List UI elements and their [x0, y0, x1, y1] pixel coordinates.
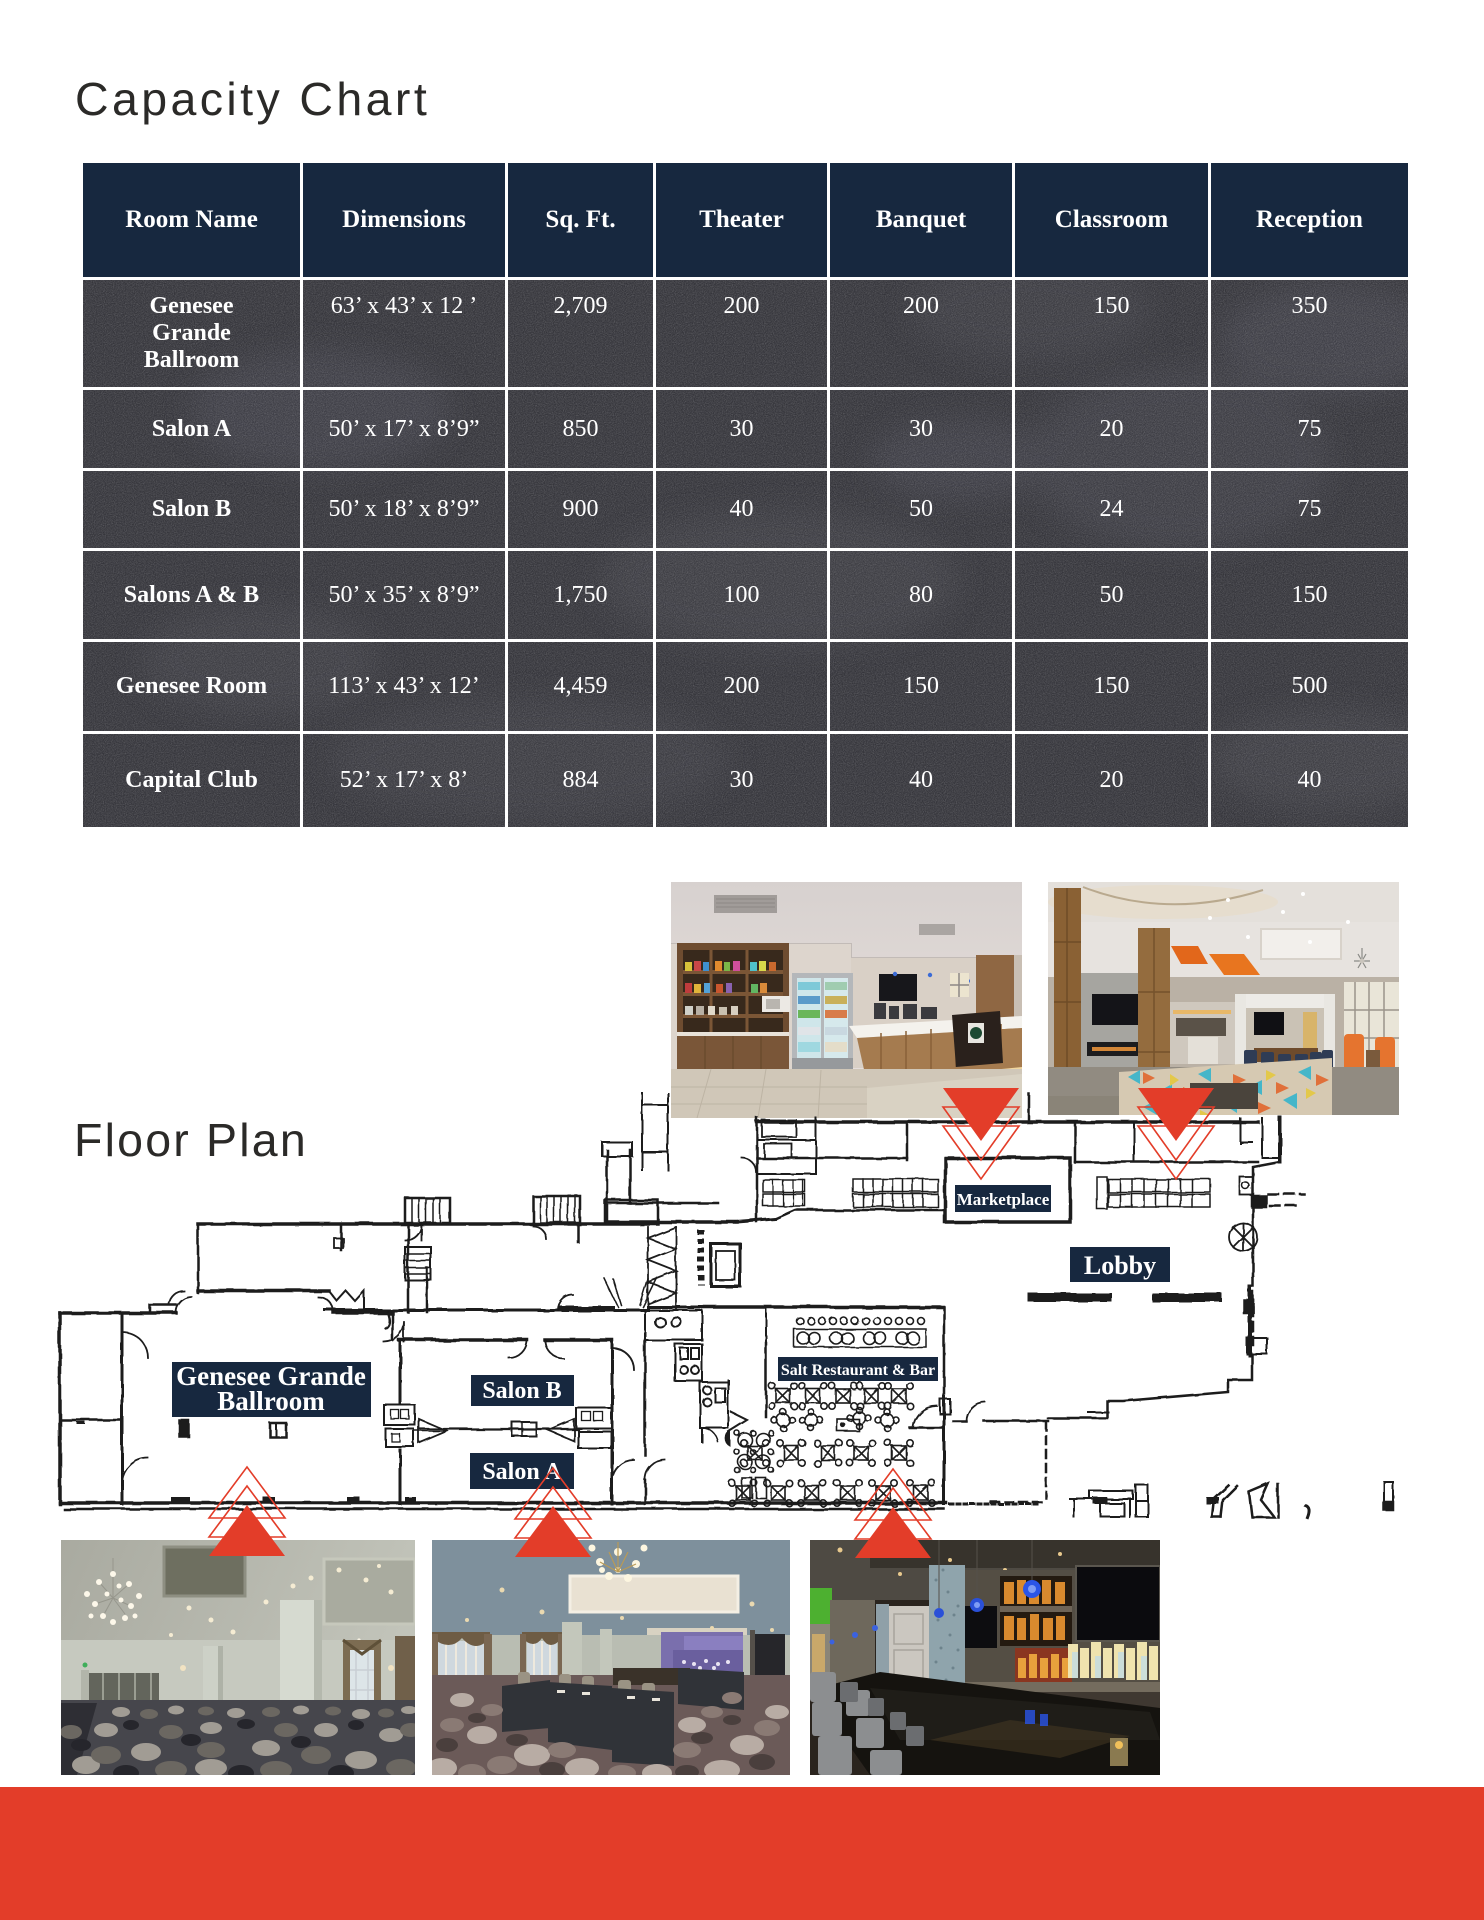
svg-text:Salon B: Salon B — [482, 1378, 561, 1404]
svg-text:Lobby: Lobby — [1084, 1251, 1156, 1280]
svg-text:Salt Restaurant & Bar: Salt Restaurant & Bar — [781, 1362, 935, 1379]
svg-text:Ballroom: Ballroom — [217, 1386, 325, 1416]
svg-text:Marketplace: Marketplace — [957, 1190, 1050, 1209]
